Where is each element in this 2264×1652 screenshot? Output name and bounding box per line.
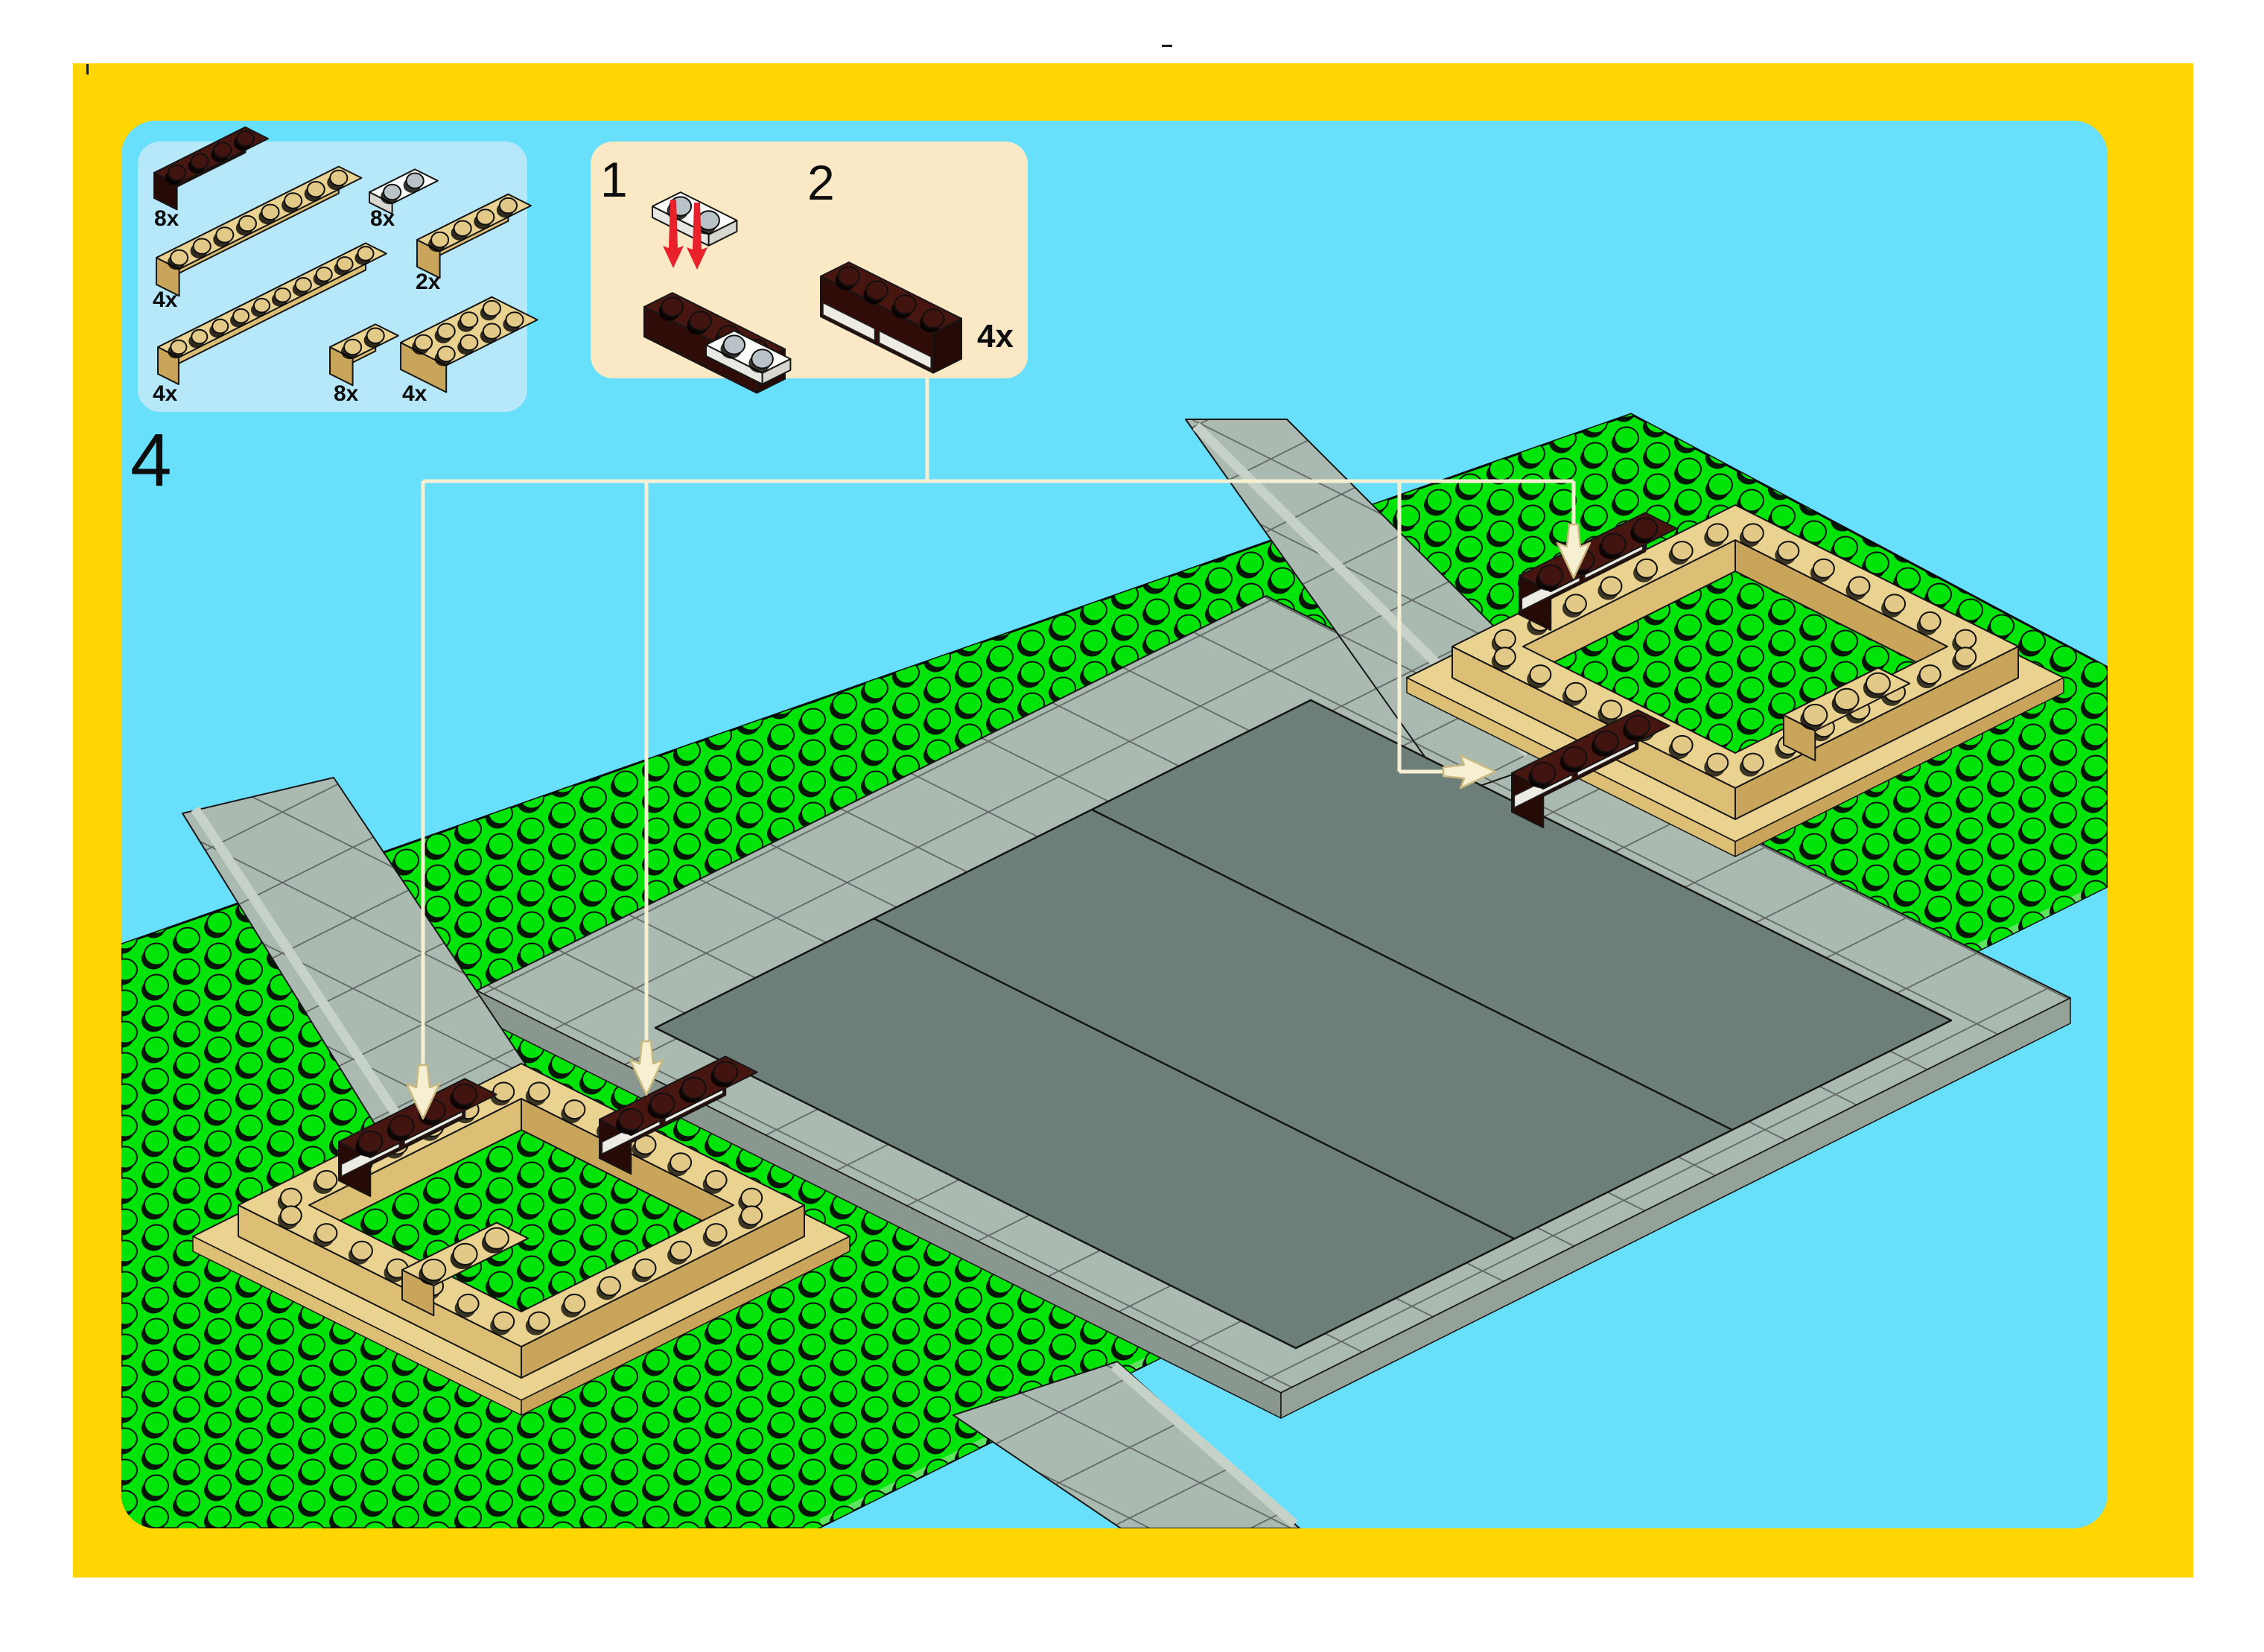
part-brick-1x2-tan [330,324,398,385]
part-qty-tan-1x10: 4x [153,383,177,405]
panel-graphics [0,0,2264,1652]
substep1-white-plate-attached [706,331,790,384]
print-tick-mark-top [1162,45,1172,47]
instruction-page: 4 8x 8x 4x 2x 4x 8x 4x 1 2 4x [0,0,2264,1652]
substep-1-number: 1 [600,155,628,204]
part-brick-2x4-tan [401,297,538,393]
substep-2-number: 2 [807,158,835,207]
part-qty-dark-brown-1x4: 8x [154,208,179,230]
part-qty-tan-1x4: 2x [416,271,440,293]
part-qty-tan-1x2: 8x [334,383,358,405]
part-brick-1x4-tan [417,194,531,279]
substep-graphics [644,192,961,393]
substep2-assembled-brick [821,262,961,373]
part-qty-white-plate-1x2: 8x [370,208,395,230]
parts-panel-bricks [154,127,538,393]
part-qty-tan-2x4: 4x [402,383,427,405]
part-qty-tan-1x8: 4x [153,289,177,311]
step-number: 4 [130,423,172,498]
print-tick-mark [86,64,89,74]
part-brick-1x4-dark-brown [154,127,268,209]
assembly-count: 4x [977,320,1014,353]
